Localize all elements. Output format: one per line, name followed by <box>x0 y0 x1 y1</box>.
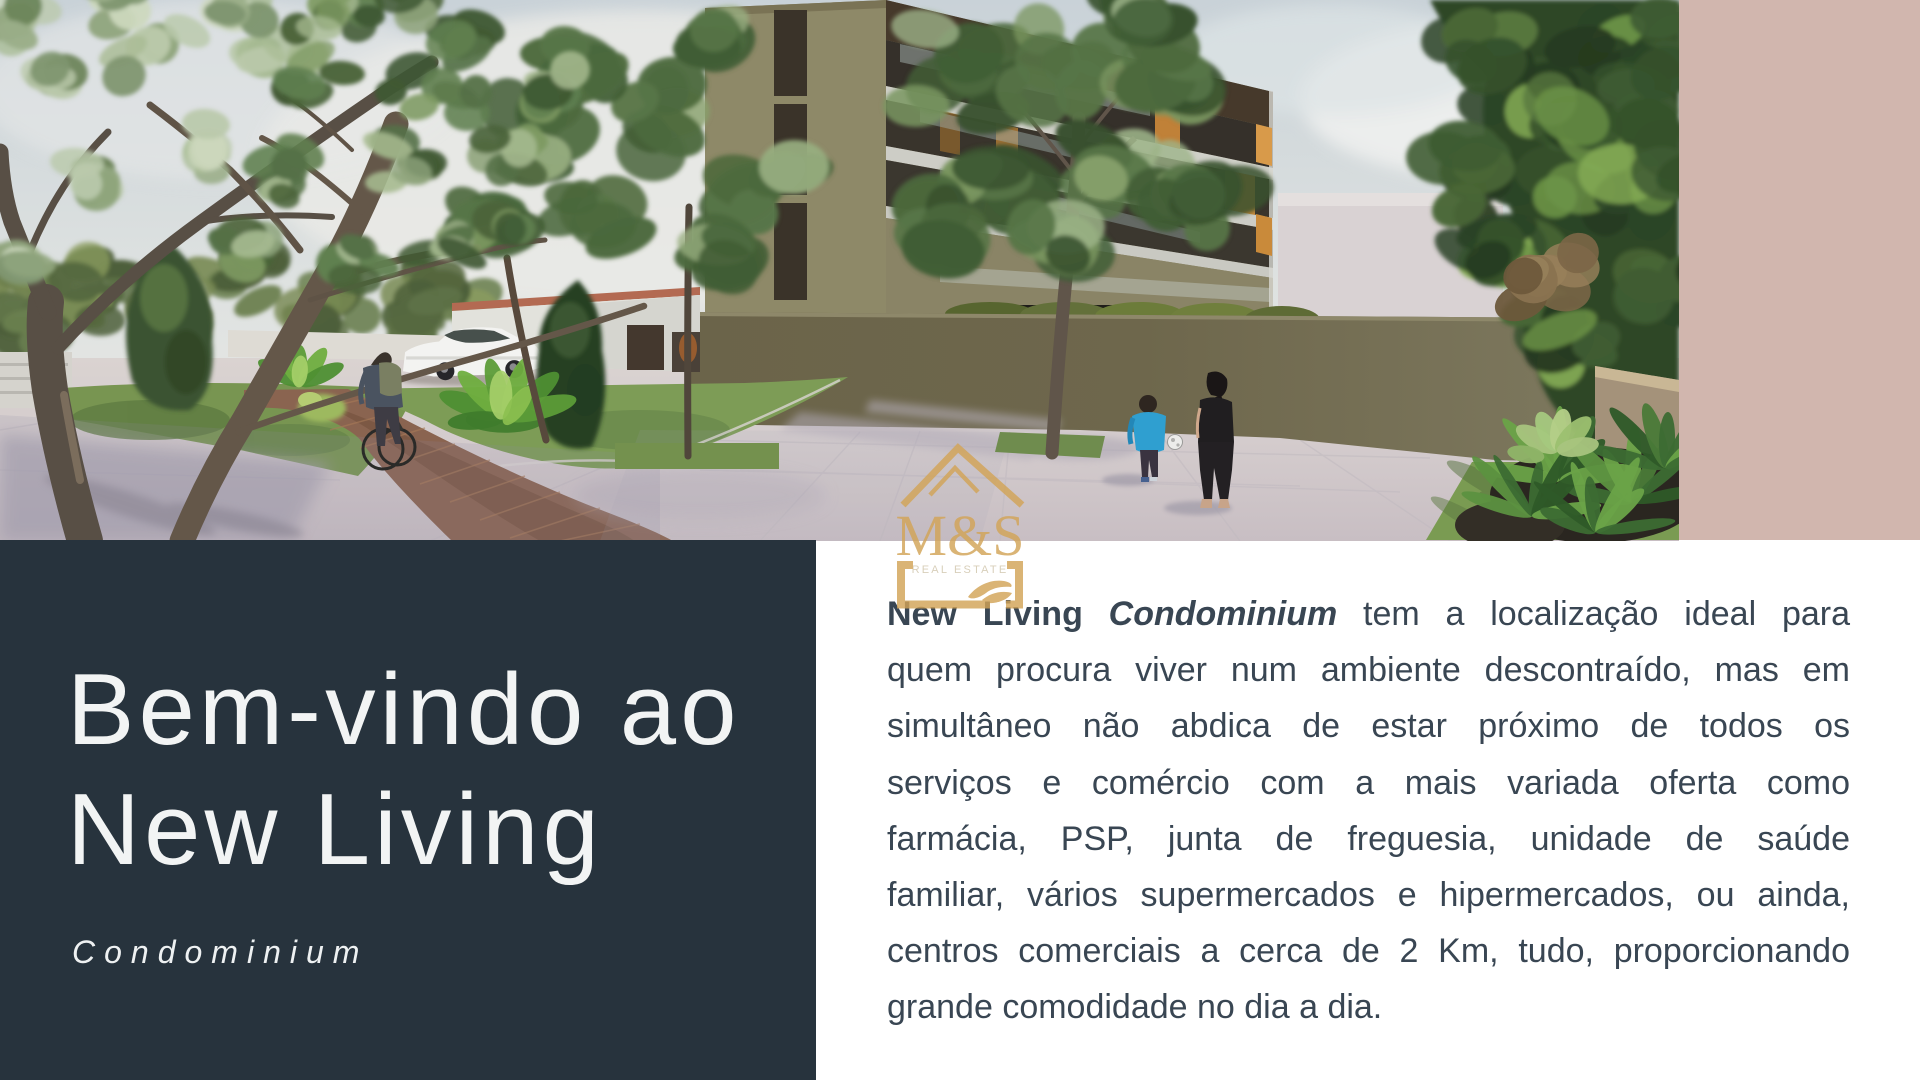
svg-text:REAL ESTATE: REAL ESTATE <box>912 564 1009 576</box>
svg-text:M&S: M&S <box>896 503 1025 568</box>
